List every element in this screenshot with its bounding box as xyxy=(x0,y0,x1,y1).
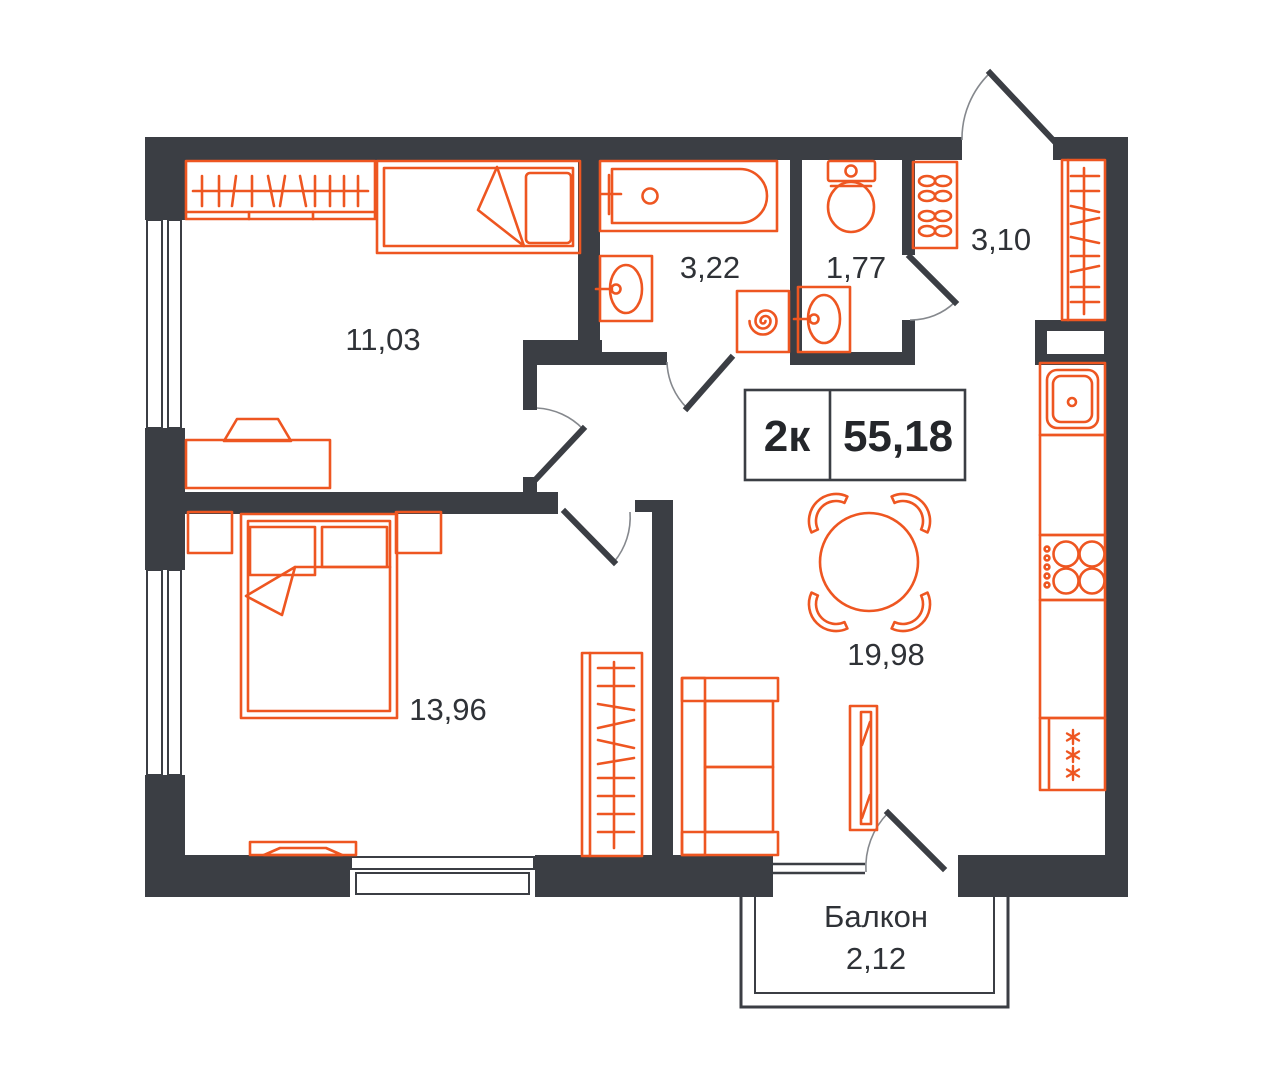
window-bedroom-bottom xyxy=(350,855,535,897)
single-bed-icon xyxy=(377,161,580,253)
window-room1 xyxy=(145,220,185,428)
shoe-rack-icon xyxy=(913,162,957,248)
fridge-icon xyxy=(1040,718,1105,790)
washing-machine-icon xyxy=(737,291,789,352)
desk-icon xyxy=(186,419,330,488)
room1-door xyxy=(537,408,583,478)
balcony-area-label: 2,12 xyxy=(846,941,906,976)
floor-plan: 11,03 3,22 1,77 3,10 19,98 13,96 Балкон … xyxy=(0,0,1270,1079)
windows xyxy=(145,220,865,897)
window-bedroom-left xyxy=(145,570,185,775)
kitchen-counter xyxy=(1040,600,1105,718)
sofa-icon xyxy=(682,678,778,855)
wc-door xyxy=(910,257,955,320)
shaft-opening xyxy=(1047,331,1104,354)
sink-icon xyxy=(596,256,652,321)
bathtub-icon xyxy=(600,161,777,231)
bathroom-area-label: 3,22 xyxy=(680,250,740,285)
tv-icon xyxy=(850,706,877,830)
hallway-area-label: 3,10 xyxy=(971,222,1031,257)
room1-area-label: 11,03 xyxy=(345,322,420,357)
wc-area-label: 1,77 xyxy=(826,250,886,285)
bedroom-area-label: 13,96 xyxy=(409,692,487,727)
window-balcony xyxy=(771,855,865,897)
tv-console-icon xyxy=(250,842,356,855)
hall-wardrobe-icon xyxy=(1062,160,1105,320)
bedroom-furniture xyxy=(188,512,642,856)
nightstand-icon xyxy=(396,512,441,553)
unit-type-label: 2к xyxy=(764,412,811,461)
wardrobe-icon xyxy=(186,161,375,219)
dining-table-icon xyxy=(809,494,930,631)
double-bed-icon xyxy=(241,514,397,718)
kitchen-sink-icon xyxy=(1040,363,1105,435)
balcony-name-label: Балкон xyxy=(824,899,928,934)
bathroom-door xyxy=(667,358,731,408)
toilet-icon xyxy=(828,161,875,232)
sink-icon xyxy=(794,287,850,352)
nightstand-icon xyxy=(188,512,232,553)
info-box: 2к 55,18 xyxy=(745,390,965,480)
bedroom-door xyxy=(565,512,630,562)
kitchen-counter xyxy=(1040,435,1105,535)
total-area-label: 55,18 xyxy=(843,412,953,461)
bedroom-wardrobe-icon xyxy=(582,653,642,856)
entrance-door xyxy=(962,73,1053,140)
kitchen-area-label: 19,98 xyxy=(847,637,925,672)
stove-icon xyxy=(1040,535,1105,600)
